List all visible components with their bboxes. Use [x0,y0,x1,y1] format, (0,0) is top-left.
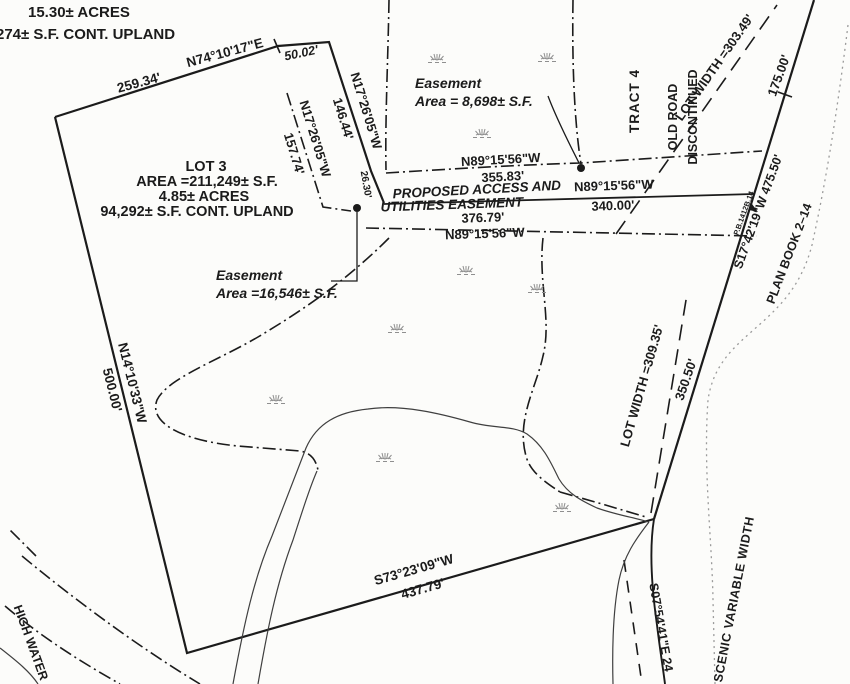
bearing-label: N89°15'56"W [574,177,655,195]
bearing-label: N74°10'17"E [185,35,265,70]
easement-corner-point [577,164,585,172]
marsh-icon [428,54,446,63]
adjacent-parcel-upland-label: 274± S.F. CONT. UPLAND [0,26,175,43]
high-water-line-stub [8,528,36,556]
easement2-label-line2: Area =16,546± S.F. [215,285,338,301]
easement1-label-line2: Area = 8,698± S.F. [414,93,533,109]
lot3-upland-label: 94,292± S.F. CONT. UPLAND [100,204,293,220]
easement1-leader-line [548,96,579,163]
bearing-label: N89°15'56"W [445,225,526,243]
lot3-title: LOT 3 [185,159,226,175]
easement1-label-line1: Easement [415,75,482,91]
distance-label: 376.79' [461,209,504,225]
easement2-label-line1: Easement [216,267,283,283]
plat-scan-page: 15.30± ACRES 274± S.F. CONT. UPLAND 259.… [0,0,850,684]
bearing-label: S07°54'41"E 24 [646,582,675,673]
marsh-icon [473,129,491,138]
wetland-line-top-right [573,0,581,164]
adjacent-parcel-acreage-label: 15.30± ACRES [28,4,130,21]
plan-book-label: PLAN BOOK 2–14 [764,201,815,305]
high-water-line-upper [22,556,200,684]
bearing-label: N89°15'56"W [461,150,542,169]
marsh-icon [538,53,556,62]
easement-corner-point [353,204,361,212]
marsh-icon [553,503,571,512]
marsh-icon [267,395,285,404]
distance-label: 26.30' [358,170,374,199]
lot3-acres-label: 4.85± ACRES [159,189,250,205]
marsh-icon [376,453,394,462]
distance-label: 146.44' [330,96,357,141]
distance-label: 340.00' [591,197,634,213]
high-water-label: HIGH WATER [11,603,51,682]
wetland-line-top-left [386,0,389,170]
bearing-label: N17°26'05"W [348,70,386,151]
distance-label: 175.00' [764,53,793,98]
lot-width-north-label: LOT WIDTH =303.49' [672,11,757,123]
plat-drawing: 15.30± ACRES 274± S.F. CONT. UPLAND 259.… [0,0,850,684]
distance-label: 157.74' [281,131,308,176]
wetland-meander-line-east [523,238,560,492]
stream-main-line [233,408,649,684]
distance-label: 259.34' [115,70,162,96]
scenic-road-label: SCENIC VARIABLE WIDTH [711,515,757,683]
wetland-connector-line [560,492,646,517]
stream-parallel-line [258,471,317,684]
tract4-label: TRACT 4 [627,69,642,133]
marsh-icon [388,324,406,333]
dashed-line-bottom-right [624,560,642,684]
lot-width-south-label: LOT WIDTH =309.35' [617,323,666,449]
lot3-area-label: AREA =211,249± S.F. [136,174,278,190]
lot3-west-south-boundary-line [55,117,654,653]
marsh-icon [457,266,475,275]
easement-south-limit-line [366,228,757,236]
scenic-road-dotted-line [706,25,848,684]
